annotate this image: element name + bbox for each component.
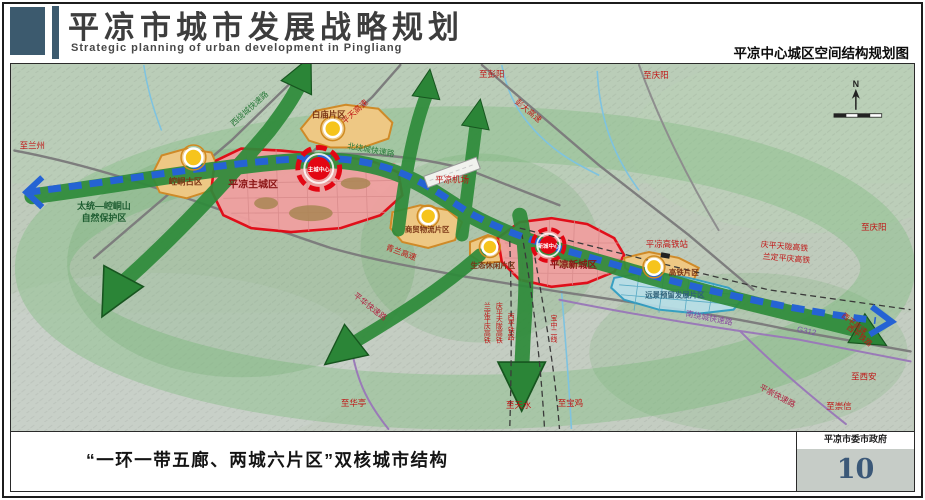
compass-n: N bbox=[853, 79, 859, 89]
page-subtitle-en: Strategic planning of urban development … bbox=[71, 42, 402, 54]
header-accent-square bbox=[10, 7, 45, 55]
city-label-new-city: 平凉新城区 bbox=[550, 259, 598, 271]
label-to-tianshui: 至天水 bbox=[506, 400, 532, 410]
district-label-reserved: 远景预留发展片区 bbox=[645, 290, 705, 300]
rail-label-xiping: 西平铁路 bbox=[507, 313, 514, 342]
scale-bar bbox=[834, 114, 882, 117]
district-label-eco-leisure: 生态休闲片区 bbox=[471, 260, 516, 270]
rail-label-baozhong: 宝中二线 bbox=[550, 314, 557, 343]
center-label-new: 新城中心 bbox=[538, 242, 560, 250]
label-airport: 平凉机场 bbox=[435, 174, 469, 184]
district-label-kongtong: 崆峒古区 bbox=[169, 176, 203, 186]
district-label-hsr: 高铁片区 bbox=[669, 267, 699, 277]
city-label-main-city: 平凉主城区 bbox=[228, 177, 278, 190]
label-to-qingyang-right: 至庆阳 bbox=[861, 222, 886, 232]
page: 平凉市城市发展战略规划 Strategic planning of urban … bbox=[0, 0, 925, 500]
label-nature-reserve-2: 自然保护区 bbox=[82, 212, 127, 223]
map-caption: 平凉中心城区空间结构规划图 bbox=[734, 42, 910, 62]
page-title: 平凉市城市发展战略规划 bbox=[68, 2, 464, 47]
rail-label-ldpq-south: 兰定平庆高铁 bbox=[483, 301, 490, 345]
page-number: 10 bbox=[797, 449, 914, 491]
header-accent-bar bbox=[52, 6, 59, 59]
label-to-huating: 至华亭 bbox=[341, 398, 366, 408]
label-hsr-station: 平凉高铁站 bbox=[646, 239, 689, 249]
label-nature-reserve-1: 太统—崆峒山 bbox=[77, 200, 131, 211]
footer-page-box: 平凉市委市政府 10 bbox=[796, 432, 914, 491]
label-to-chongxin: 至崇信 bbox=[826, 401, 851, 411]
center-label-main: 主城中心 bbox=[308, 165, 330, 173]
rail-label-qpt-south: 庆平天陇高铁 bbox=[495, 301, 502, 345]
label-to-pengyang: 至彭阳 bbox=[479, 69, 504, 79]
agency-label: 平凉市委市政府 bbox=[797, 432, 914, 449]
label-to-baoji: 至宝鸡 bbox=[558, 398, 583, 408]
district-label-trade-logistics: 商贸物流片区 bbox=[405, 224, 450, 234]
label-to-lanzhou: 至兰州 bbox=[20, 141, 45, 151]
label-to-qingyang-top: 至庆阳 bbox=[643, 70, 668, 80]
label-to-xian: 至西安 bbox=[851, 371, 876, 381]
district-label-baimiao: 白庙片区 bbox=[312, 110, 346, 120]
structure-caption: “一环一带五廊、两城六片区”双核城市结构 bbox=[86, 447, 449, 472]
map-canvas: 至兰州至彭阳至庆阳至庆阳至西安至崇信至华亭至天水至宝鸡平天高速彭大高速青兰高速西… bbox=[10, 63, 915, 432]
footer: “一环一带五廊、两城六片区”双核城市结构 平凉市委市政府 10 bbox=[10, 432, 915, 492]
